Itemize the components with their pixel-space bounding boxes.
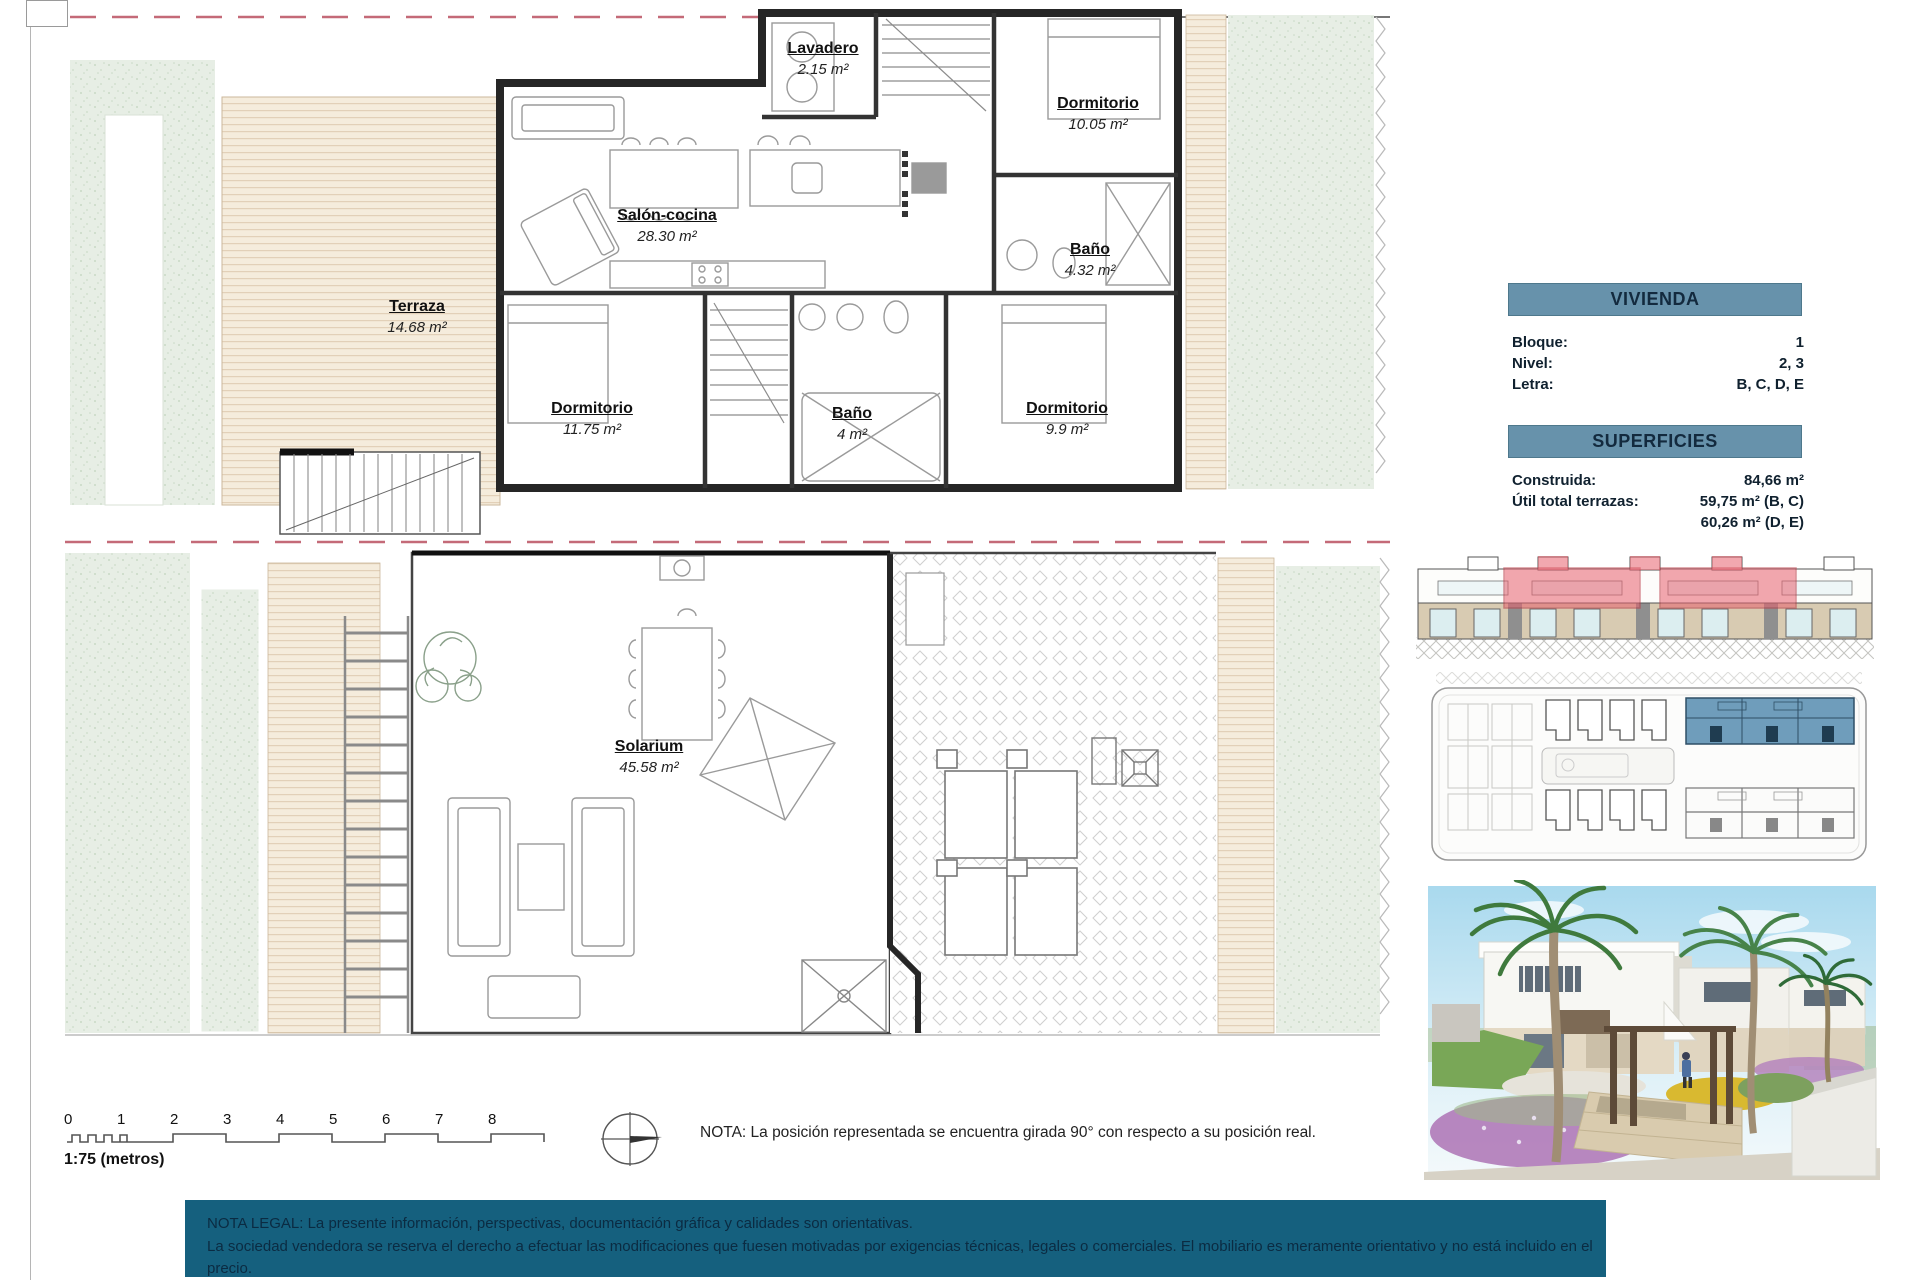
vivienda-row: Letra:B, C, D, E [1512,374,1804,395]
garden-right [1228,15,1374,489]
room-name: Lavadero [787,40,858,58]
scale-ticks: 0 1 2 3 4 5 6 7 8 [64,1111,496,1128]
svg-text:2: 2 [170,1111,178,1128]
room-label: Baño 4.32 m² [1065,241,1116,279]
scale-line [67,1134,544,1142]
room-label: Dormitorio 10.05 m² [1057,95,1139,133]
superficies-row: Útil total terrazas: 59,75 m² (B, C) 60,… [1512,491,1804,533]
vivienda-rows: Bloque:1 Nivel:2, 3 Letra:B, C, D, E [1512,332,1804,395]
room-label: Dormitorio 9.9 m² [1026,400,1108,438]
siteplan-thumbnail [1428,672,1870,868]
legal-bar: NOTA LEGAL: La presente información, per… [185,1200,1606,1277]
floorplan-level-2 [50,5,1395,510]
superficies-title: SUPERFICIES [1592,431,1718,452]
pool-area [1542,748,1674,784]
room-area: 2.15 m² [787,61,858,78]
side-wall [1432,1004,1480,1042]
garden-left-2 [65,553,190,1033]
nota-text: NOTA: La posición representada se encuen… [700,1124,1316,1142]
room-label: Solarium 45.58 m² [615,738,683,776]
terraza-deck [222,97,500,505]
scale-bar: 0 1 2 3 4 5 6 7 8 1:75 (metros) [60,1108,580,1168]
deck-right [1186,15,1226,489]
svg-text:0: 0 [64,1111,72,1128]
floorplan-solarium [50,528,1395,1040]
garden-left-inner [200,588,260,1033]
vivienda-title: VIVIENDA [1610,289,1699,310]
room-label: Baño 4 m² [832,405,872,443]
svg-text:6: 6 [382,1111,390,1128]
highlighted-block [1686,698,1854,744]
scale-ratio: 1:75 (metros) [64,1151,164,1168]
legal-line-2: La sociedad vendedora se reserva el dere… [207,1236,1606,1280]
compass-icon [592,1110,668,1170]
render-photo [1424,880,1880,1180]
deck-right-2 [1218,558,1274,1033]
vivienda-row: Bloque:1 [1512,332,1804,353]
garden-gap [105,115,163,505]
vivienda-row: Nivel:2, 3 [1512,353,1804,374]
elevation-thumbnail [1412,545,1878,663]
stairwell-block [278,446,482,538]
svg-text:4: 4 [276,1111,284,1128]
superficies-row: Construida:84,66 m² [1512,470,1804,491]
zigzag-edge-2 [1380,558,1389,1014]
svg-text:3: 3 [223,1111,231,1128]
room-label: Lavadero 2.15 m² [787,40,858,78]
legal-line-1: NOTA LEGAL: La presente información, per… [207,1213,1606,1236]
vivienda-header: VIVIENDA [1508,283,1802,316]
solarium-floor [412,553,890,1033]
superficies-rows: Construida:84,66 m² Útil total terrazas:… [1512,470,1804,533]
svg-text:5: 5 [329,1111,337,1128]
right-block-bottom [1686,788,1854,838]
brochure-page: { "plan_top": { "rooms": [ {"name": "Lav… [0,0,1920,1280]
room-label: Terraza 14.68 m² [387,298,446,336]
terrace-bench [906,573,944,645]
svg-text:1: 1 [117,1111,125,1128]
garden-right-2 [1276,566,1380,1033]
room-label: Salón-cocina 28.30 m² [617,207,717,245]
zigzag-edge [1376,17,1385,473]
sun-loungers [937,750,1077,955]
room-label: Dormitorio 11.75 m² [551,400,633,438]
svg-text:7: 7 [435,1111,443,1128]
svg-text:8: 8 [488,1111,496,1128]
superficies-header: SUPERFICIES [1508,425,1802,458]
page-edge-line [30,0,31,1280]
